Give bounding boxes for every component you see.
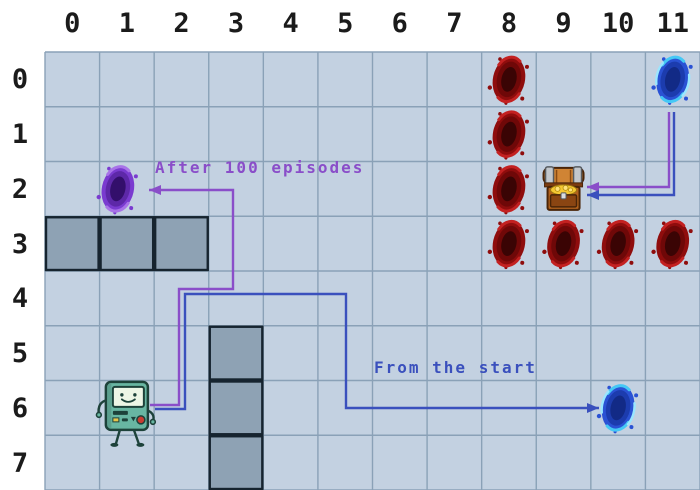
wall-cell — [210, 327, 263, 380]
col-label-10: 10 — [591, 10, 645, 37]
col-label-1: 1 — [100, 10, 154, 37]
gridworld-figure: 0123456789101101234567 After 100 episode… — [0, 0, 700, 490]
row-label-3: 3 — [0, 231, 40, 258]
wall-cell — [46, 217, 99, 270]
col-label-5: 5 — [318, 10, 372, 37]
col-label-9: 9 — [537, 10, 591, 37]
wall-cell — [101, 217, 154, 270]
row-label-6: 6 — [0, 395, 40, 422]
col-label-11: 11 — [646, 10, 700, 37]
annotation-from-start: From the start — [374, 360, 537, 376]
row-label-0: 0 — [0, 66, 40, 93]
wall-cell — [210, 436, 263, 489]
col-label-4: 4 — [264, 10, 318, 37]
treasure-chest-icon — [544, 167, 584, 210]
col-label-7: 7 — [427, 10, 481, 37]
col-label-8: 8 — [482, 10, 536, 37]
wall-cell — [210, 382, 263, 435]
col-label-2: 2 — [154, 10, 208, 37]
row-label-2: 2 — [0, 176, 40, 203]
gridworld-board — [0, 0, 700, 490]
row-label-7: 7 — [0, 450, 40, 477]
col-label-6: 6 — [373, 10, 427, 37]
row-label-5: 5 — [0, 340, 40, 367]
row-label-4: 4 — [0, 285, 40, 312]
col-label-0: 0 — [45, 10, 99, 37]
annotation-after-episodes: After 100 episodes — [155, 160, 364, 176]
col-label-3: 3 — [209, 10, 263, 37]
row-label-1: 1 — [0, 121, 40, 148]
wall-cell — [155, 217, 208, 270]
